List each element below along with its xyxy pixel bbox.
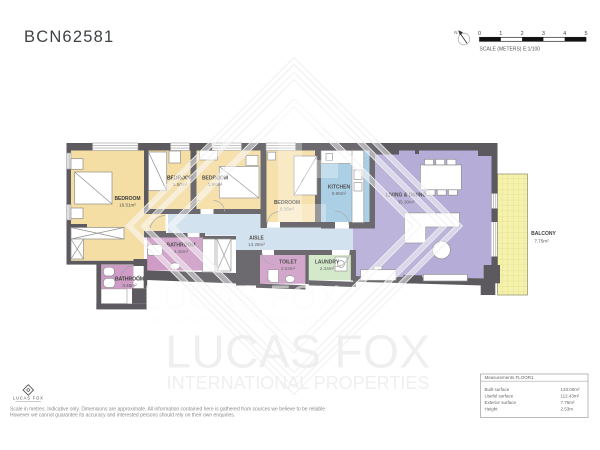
svg-text:Height: Height [485, 407, 499, 412]
svg-text:N: N [454, 30, 457, 35]
svg-text:Measurements FLOOR1: Measurements FLOOR1 [485, 375, 535, 380]
svg-text:Useful surface: Useful surface [485, 394, 514, 399]
svg-text:BCN62581: BCN62581 [24, 28, 114, 46]
svg-text:BEDROOM: BEDROOM [114, 196, 140, 202]
svg-text:Exterior surface: Exterior surface [485, 400, 517, 405]
svg-text:1: 1 [499, 31, 502, 37]
svg-text:LUCAS FOX: LUCAS FOX [143, 279, 340, 317]
svg-text:3.46m²: 3.46m² [122, 283, 137, 288]
svg-text:LUCAS FOX: LUCAS FOX [165, 326, 430, 378]
svg-text:0: 0 [478, 31, 481, 37]
svg-text:16.51m²: 16.51m² [119, 203, 136, 208]
svg-text:BATHROOM: BATHROOM [115, 277, 144, 283]
svg-text:However we cannot guarantee it: However we cannot guarantee its accuracy… [10, 412, 235, 418]
svg-text:7.75m²: 7.75m² [561, 400, 576, 405]
svg-text:5: 5 [584, 31, 587, 37]
svg-text:112.43m²: 112.43m² [561, 394, 580, 399]
svg-text:2: 2 [521, 31, 524, 37]
svg-text:2.53m: 2.53m [561, 407, 574, 412]
svg-text:3: 3 [542, 31, 545, 37]
svg-text:SCALE (METERS) E:1/100: SCALE (METERS) E:1/100 [480, 47, 541, 53]
svg-text:7.75m²: 7.75m² [534, 239, 549, 244]
svg-text:INTERNATIONAL PROPERTIES: INTERNATIONAL PROPERTIES [167, 373, 430, 393]
svg-text:Built surface: Built surface [485, 387, 510, 392]
svg-text:BALCONY: BALCONY [531, 231, 556, 237]
svg-text:133.00m²: 133.00m² [561, 387, 581, 392]
svg-text:4: 4 [563, 31, 566, 37]
svg-text:LUCAS FOX: LUCAS FOX [13, 396, 44, 401]
